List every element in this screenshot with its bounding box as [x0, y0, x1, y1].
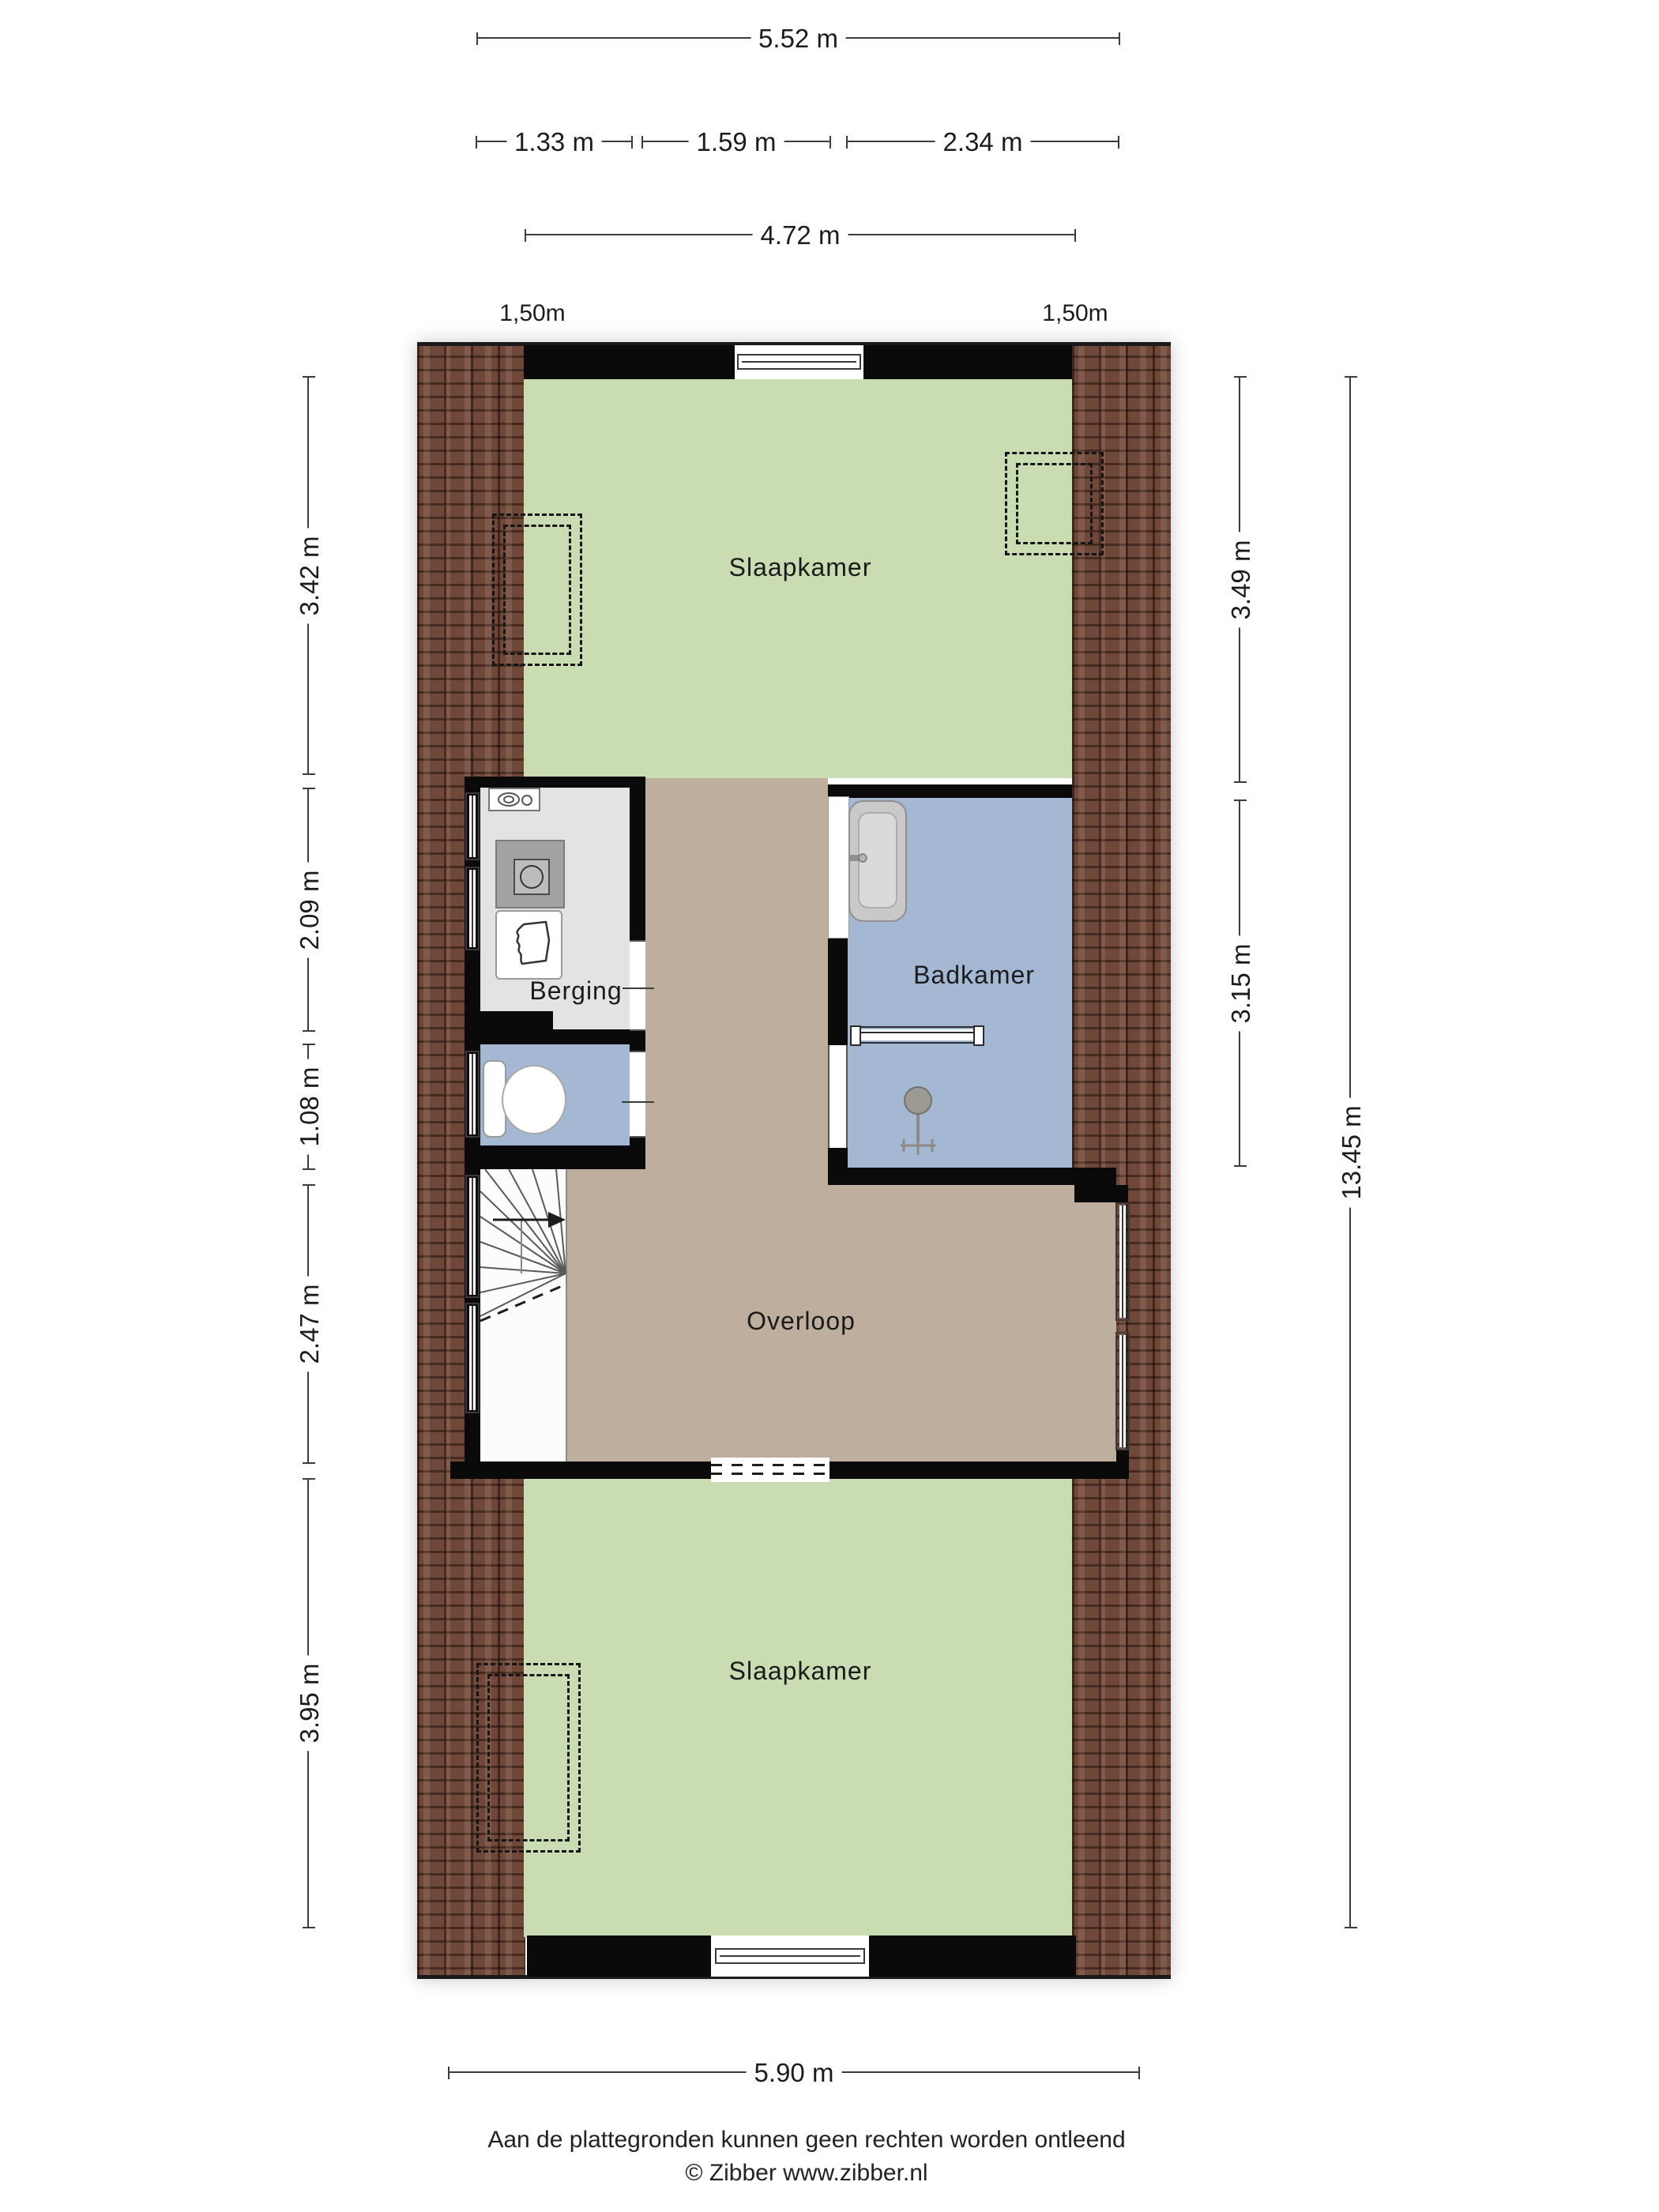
washing-machine-icon [495, 840, 565, 908]
dimension-label: 2.34 m [935, 126, 1031, 158]
wall-badkamer-left-stub2 [828, 1148, 848, 1168]
dimension-right-1: 3.49 m [1239, 377, 1240, 782]
window-berging-left-2 [465, 867, 480, 950]
window-toilet-left [465, 1051, 480, 1138]
dimension-top-total: 5.52 m [477, 37, 1119, 39]
wall-badkamer-left-stub [828, 1029, 848, 1045]
window-overloop-right-2 [1115, 1332, 1130, 1450]
door-toilet [630, 1051, 645, 1138]
washing-machine-drum [520, 865, 544, 889]
dimension-left-3: 1.08 m [307, 1044, 309, 1169]
wall-bottom-right [869, 1935, 1076, 1977]
dimension-left-5: 3.95 m [307, 1479, 309, 1928]
dimension-top-inner: 4.72 m [525, 234, 1075, 235]
door-badkamer [828, 1045, 848, 1148]
window-bottom-icon [715, 1948, 865, 1964]
bedroom-bottom-floor [524, 1479, 1072, 1937]
dimension-bottom: 5.90 m [449, 2071, 1139, 2073]
dimension-label: 4.72 m [753, 220, 848, 251]
laundry-basket-icon [495, 910, 562, 980]
wall-berging-toilet-step [465, 1011, 553, 1031]
room-label-berging: Berging [497, 976, 655, 1006]
wall-berging-top [465, 777, 645, 788]
dormer-outline-bottom-left-inner [487, 1674, 570, 1841]
window-berging-left-1 [465, 792, 480, 860]
wall-badkamer-bottom [828, 1168, 1116, 1185]
dimension-left-4: 2.47 m [307, 1185, 309, 1463]
toilet-icon [480, 1055, 575, 1145]
dimension-label: 5.90 m [747, 2057, 842, 2089]
wall-top-right [863, 345, 1072, 379]
stairs-direction-arrow-icon [548, 1212, 566, 1228]
headroom-label-left: 1,50m [477, 300, 588, 327]
dimension-right-total: 13.45 m [1349, 377, 1351, 1928]
dormer-outline-top-right-inner [1016, 463, 1093, 544]
footer-disclaimer: Aan de plattegronden kunnen geen rechten… [316, 2127, 1297, 2154]
dimension-label: 3.49 m [1225, 532, 1257, 627]
room-label-overloop: Overloop [683, 1307, 920, 1336]
window-overloop-bottom [711, 1458, 829, 1482]
sink-counter [828, 796, 849, 939]
dimension-label: 13.45 m [1336, 1097, 1367, 1207]
room-label-badkamer: Badkamer [856, 961, 1093, 990]
dimension-label: 3.95 m [294, 1656, 325, 1751]
dimension-label: 2.47 m [294, 1277, 325, 1372]
window-top-icon [737, 354, 861, 370]
dimension-left-2: 2.09 m [307, 788, 309, 1031]
vent-unit-icon [488, 788, 540, 811]
window-stairs-left-1 [465, 1175, 480, 1298]
toilet-leader-line [622, 1101, 654, 1103]
footer-copyright: © Zibber www.zibber.nl [316, 2160, 1297, 2187]
wall-dormer-right-step [1074, 1185, 1128, 1202]
radiator-icon [851, 1026, 984, 1044]
sink-icon [848, 799, 909, 926]
stairs-icon [480, 1169, 567, 1461]
wall-top-left [524, 345, 735, 379]
dimension-top-seg-2: 1.59 m [642, 141, 830, 142]
wall-bottom-left [527, 1935, 711, 1977]
dimension-label: 1.08 m [294, 1059, 325, 1155]
floorplan-page: 5.52 m 1.33 m 1.59 m 2.34 m 4.72 m 1,50m… [0, 0, 1659, 2212]
dimension-label: 1.33 m [506, 126, 602, 158]
window-stairs-left-2 [465, 1303, 480, 1413]
headroom-label-right: 1,50m [1020, 300, 1130, 327]
dimension-label: 1.59 m [689, 126, 784, 158]
roof-band-right [1072, 342, 1171, 1979]
dormer-outline-top-left-inner [503, 525, 571, 655]
berging-leader-line [623, 987, 654, 989]
dimension-label: 3.42 m [294, 528, 325, 623]
window-overloop-right-1 [1115, 1202, 1130, 1321]
room-label-bedroom-top: Slaapkamer [642, 553, 958, 582]
dimension-top-seg-1: 1.33 m [476, 141, 632, 142]
shower-icon [891, 1084, 946, 1159]
overloop-floor-upper [645, 778, 828, 1169]
wall-badkamer-top [828, 784, 1072, 798]
dimension-label: 5.52 m [750, 23, 846, 55]
room-label-bedroom-bottom: Slaapkamer [642, 1657, 958, 1686]
dimension-top-seg-3: 2.34 m [847, 141, 1119, 142]
wall-berging-toilet [465, 1029, 645, 1044]
dimension-label: 2.09 m [294, 862, 325, 957]
dimension-right-2: 3.15 m [1239, 800, 1240, 1166]
dimension-left-1: 3.42 m [307, 377, 309, 774]
wall-toilet-bottom [465, 1145, 645, 1169]
dimension-label: 3.15 m [1225, 935, 1257, 1031]
